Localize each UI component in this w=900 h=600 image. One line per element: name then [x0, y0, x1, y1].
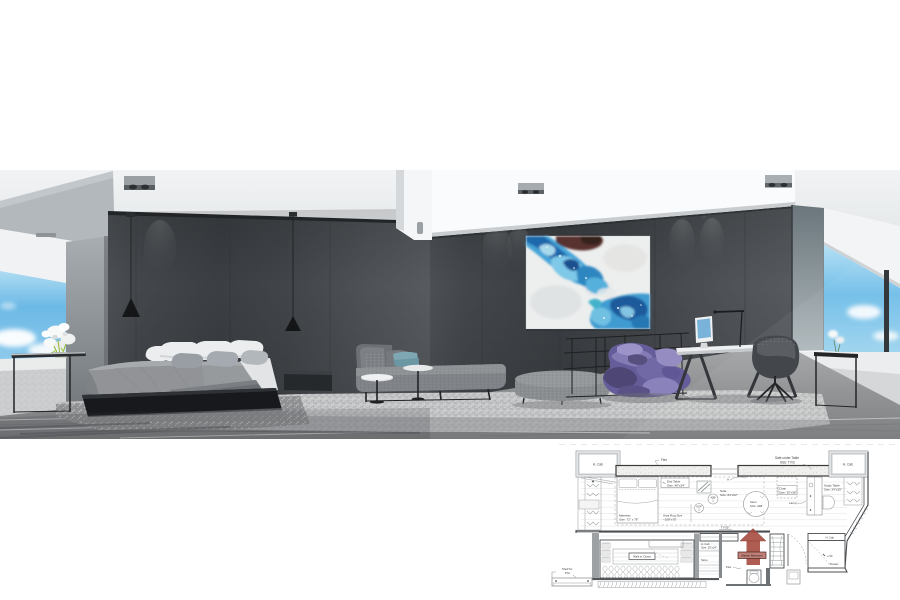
svg-text:Lamp: Lamp	[789, 501, 797, 505]
svg-text:Size: 48"x34": Size: 48"x34"	[667, 484, 685, 488]
svg-text:Flex: Flex	[661, 458, 667, 462]
svg-text:⌀ 50: ⌀ 50	[827, 554, 833, 558]
svg-text:Size: 72" x 78": Size: 72" x 78"	[619, 518, 638, 522]
svg-text:Master Bedroom: Master Bedroom	[741, 554, 763, 558]
svg-text:Flex: Flex	[726, 565, 732, 569]
svg-text:Walk in Closet: Walk in Closet	[633, 555, 651, 559]
svg-text:Safe under Table: Safe under Table	[775, 456, 799, 460]
svg-text:H. Cab: H. Cab	[701, 542, 710, 546]
svg-text:TV 55": TV 55"	[721, 526, 729, 530]
svg-text:Size: 44Ø: Size: 44Ø	[750, 504, 763, 508]
svg-text:Size: 84"x62": Size: 84"x62"	[720, 493, 738, 497]
svg-text:Shower: Shower	[829, 562, 838, 566]
svg-text:Size: 30"x36": Size: 30"x36"	[779, 491, 797, 495]
svg-text:Size: TV/C: Size: TV/C	[780, 461, 796, 465]
svg-text:A: A	[727, 478, 729, 482]
svg-text:~108"x75": ~108"x75"	[663, 518, 677, 522]
svg-text:H. Cab: H. Cab	[593, 463, 603, 467]
svg-text:H. Cab: H. Cab	[826, 536, 835, 540]
svg-text:Store: Store	[701, 558, 708, 562]
svg-text:Size: 24"x35": Size: 24"x35"	[824, 488, 842, 492]
svg-text:H. Cab: H. Cab	[843, 463, 853, 467]
svg-text:Size: 29"x24": Size: 29"x24"	[701, 546, 717, 550]
svg-text:P.M.: P.M.	[565, 571, 571, 575]
